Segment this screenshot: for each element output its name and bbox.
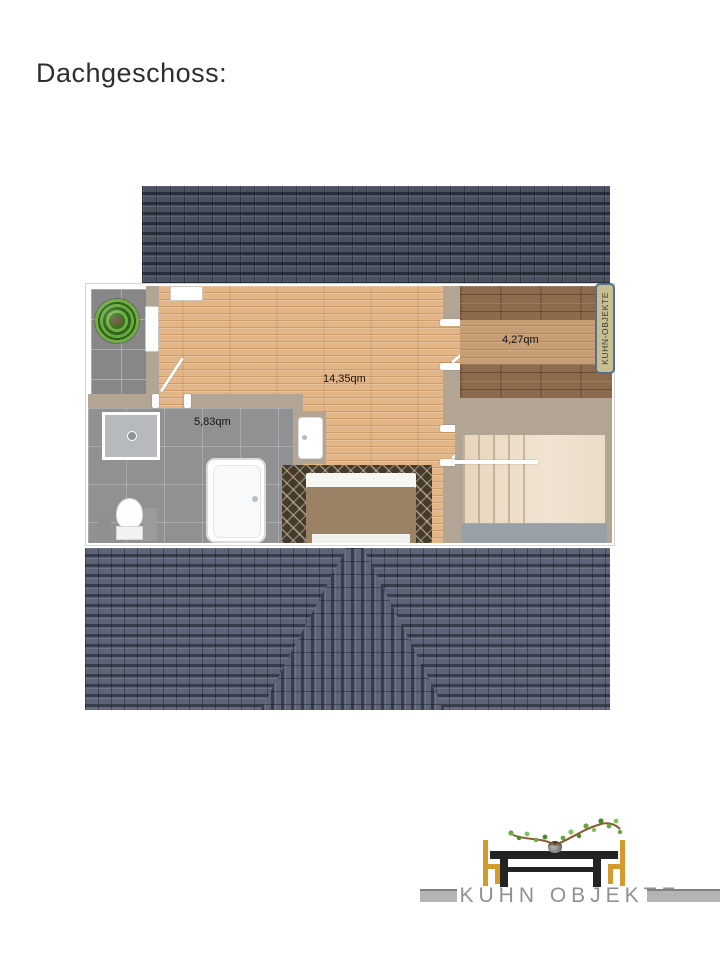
- floor-area: 14,35qm 4,27qm 5,83qm: [88, 286, 612, 543]
- plant-icon: [95, 299, 139, 343]
- balcony-door: [145, 306, 159, 352]
- roof-top: [142, 186, 610, 285]
- stair-railing: [452, 460, 538, 464]
- logo-bar-left: [420, 889, 457, 902]
- brand-logo: KUHN OBJEKTE: [420, 813, 720, 913]
- roof-bottom: [85, 548, 610, 710]
- logo-table-icon: [483, 815, 625, 887]
- stair-steps: [463, 435, 527, 523]
- shower: [102, 412, 160, 460]
- room-label-bath: 5,83qm: [194, 416, 231, 428]
- waste-bin-icon: [98, 518, 111, 535]
- bath-wall-top-right: [186, 394, 303, 408]
- toilet-icon: [116, 498, 143, 529]
- side-door-jamb-top: [440, 319, 462, 326]
- bath-door-leaf: [160, 357, 184, 392]
- roof-window: [170, 286, 203, 301]
- sink-pedestal: [143, 508, 157, 541]
- shower-head-icon: [127, 431, 137, 441]
- side-room-wall-bottom: [460, 398, 612, 408]
- bed-foot-sheet: [312, 534, 410, 543]
- side-room-knee-bottom: [460, 364, 612, 398]
- bathtub: [206, 458, 266, 543]
- sink: [298, 417, 323, 459]
- watermark-text: KUHN-OBJEKTE: [600, 292, 610, 365]
- toilet-tank: [116, 526, 143, 540]
- stair-lower-floor: [461, 524, 607, 543]
- watermark-badge: KUHN-OBJEKTE: [595, 283, 615, 374]
- bath-door-jamb-right: [184, 394, 191, 408]
- side-room-knee-top: [460, 286, 612, 320]
- logo-branch-icon: [489, 815, 623, 855]
- table-leg-right: [593, 859, 601, 887]
- roof-valley: [85, 548, 610, 710]
- sink-faucet-icon: [302, 435, 307, 440]
- floor-plan: 14,35qm 4,27qm 5,83qm: [85, 186, 612, 710]
- chair-left-back: [483, 840, 488, 886]
- table-apron: [500, 867, 601, 872]
- chair-right-leg: [608, 864, 613, 884]
- page-title: Dachgeschoss:: [36, 58, 227, 89]
- side-door-jamb-bottom: [440, 363, 462, 370]
- table-leg-left: [500, 859, 508, 887]
- logo-bar-right: [647, 889, 720, 902]
- room-label-living: 14,35qm: [323, 373, 366, 385]
- room-label-side: 4,27qm: [502, 334, 539, 346]
- bath-door-jamb-left: [152, 394, 159, 408]
- bathtub-faucet-icon: [252, 496, 258, 502]
- bath-wall-top-left: [88, 394, 158, 408]
